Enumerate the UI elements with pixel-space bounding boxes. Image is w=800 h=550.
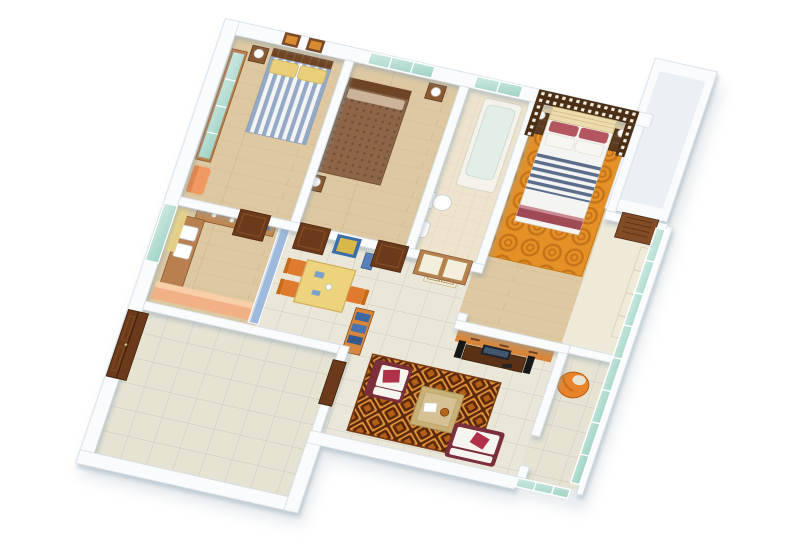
- apartment: [72, 0, 733, 550]
- floor-plan-render: [0, 0, 800, 550]
- floor-plan-svg: [0, 0, 800, 550]
